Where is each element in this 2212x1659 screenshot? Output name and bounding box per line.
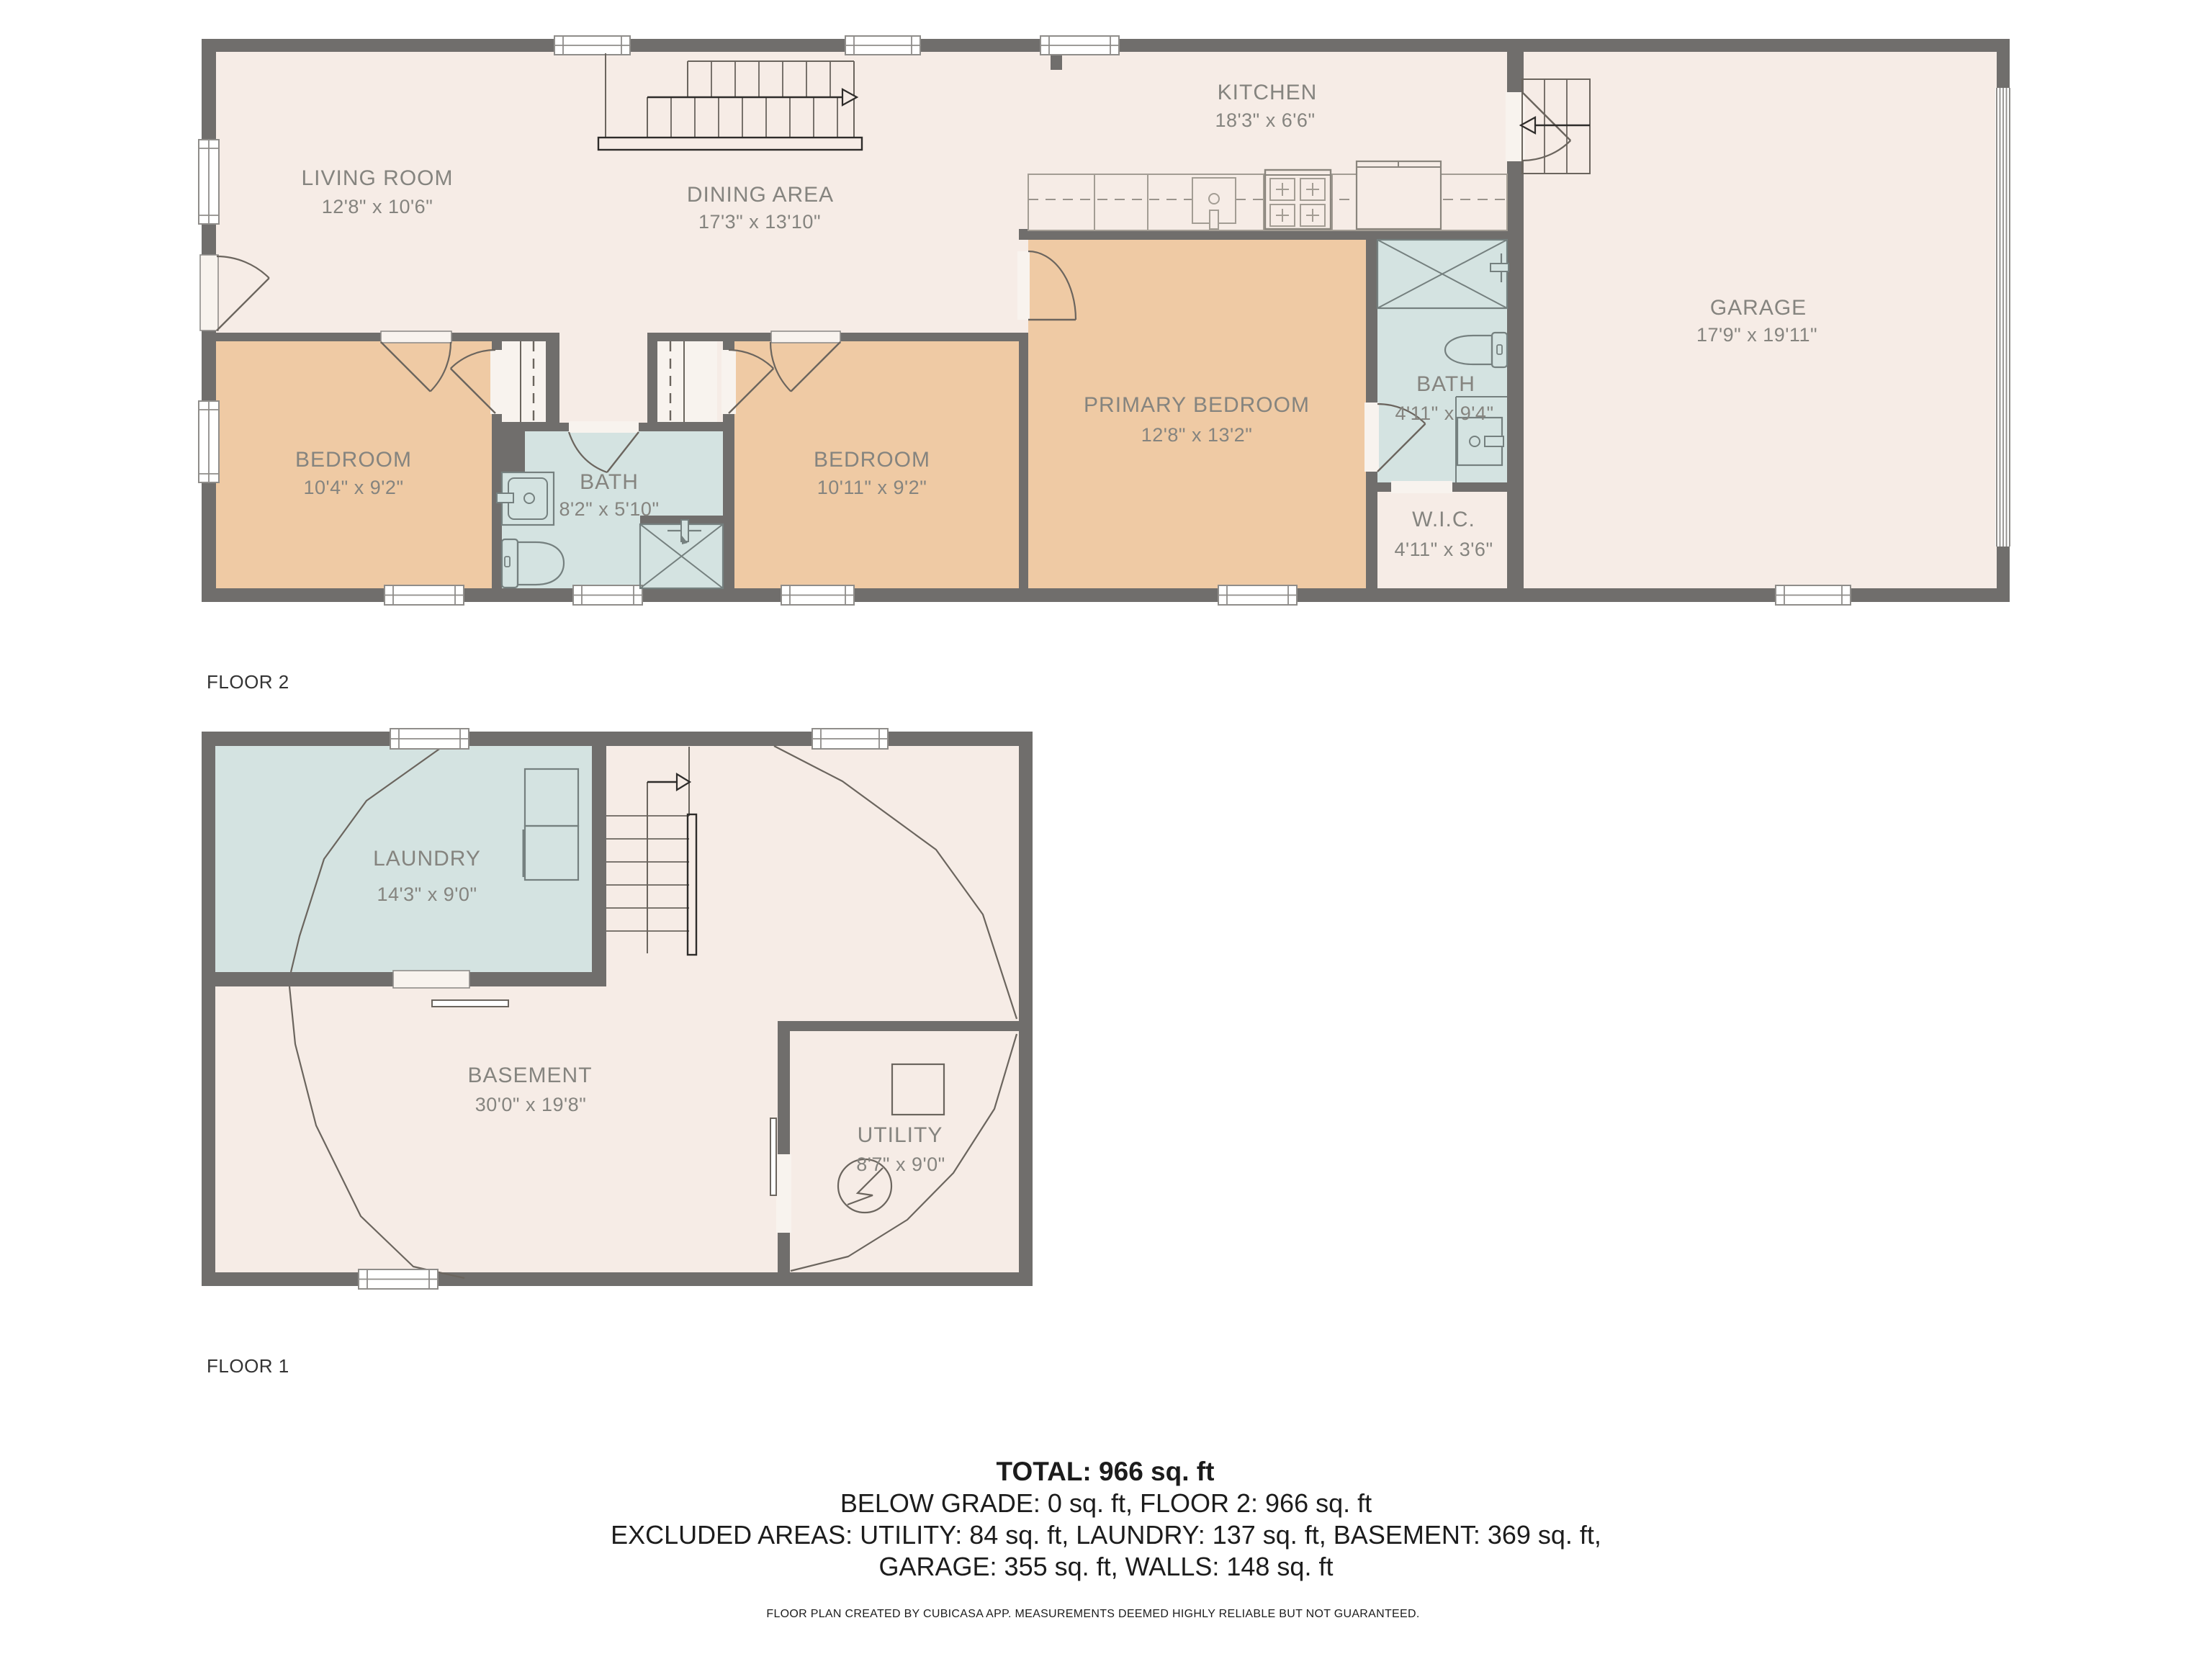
svg-text:10'4" x 9'2": 10'4" x 9'2" [303, 477, 403, 498]
svg-text:EXCLUDED AREAS: UTILITY: 84 sq: EXCLUDED AREAS: UTILITY: 84 sq. ft, LAUN… [611, 1520, 1601, 1550]
svg-text:BATH: BATH [580, 470, 639, 494]
svg-text:GARAGE: 355 sq. ft, WALLS: 148: GARAGE: 355 sq. ft, WALLS: 148 sq. ft [879, 1552, 1334, 1581]
svg-text:BASEMENT: BASEMENT [467, 1064, 592, 1087]
svg-text:8'2" x 5'10": 8'2" x 5'10" [559, 498, 659, 520]
svg-text:10'11" x 9'2": 10'11" x 9'2" [817, 477, 927, 498]
svg-text:12'8" x 13'2": 12'8" x 13'2" [1141, 424, 1253, 446]
svg-text:TOTAL: 966 sq. ft: TOTAL: 966 sq. ft [997, 1457, 1215, 1486]
svg-text:FLOOR PLAN CREATED BY CUBICASA: FLOOR PLAN CREATED BY CUBICASA APP. MEAS… [766, 1608, 1419, 1620]
svg-text:LIVING ROOM: LIVING ROOM [301, 166, 453, 190]
svg-text:17'9" x 19'11": 17'9" x 19'11" [1696, 324, 1817, 346]
svg-text:BATH: BATH [1416, 372, 1475, 396]
svg-text:12'8" x 10'6": 12'8" x 10'6" [322, 196, 433, 217]
svg-text:FLOOR 1: FLOOR 1 [207, 1355, 289, 1377]
svg-text:4'11" x 9'4": 4'11" x 9'4" [1395, 403, 1493, 424]
svg-text:14'3" x 9'0": 14'3" x 9'0" [377, 884, 477, 905]
svg-text:KITCHEN: KITCHEN [1218, 81, 1318, 104]
svg-text:FLOOR 2: FLOOR 2 [207, 671, 289, 693]
svg-text:GARAGE: GARAGE [1710, 296, 1807, 320]
svg-text:30'0" x 19'8": 30'0" x 19'8" [475, 1094, 587, 1115]
svg-text:UTILITY: UTILITY [858, 1123, 943, 1147]
svg-text:BELOW GRADE: 0 sq. ft, FLOOR 2: BELOW GRADE: 0 sq. ft, FLOOR 2: 966 sq. … [840, 1488, 1372, 1518]
svg-text:4'11" x 3'6": 4'11" x 3'6" [1394, 539, 1493, 560]
svg-text:W.I.C.: W.I.C. [1412, 508, 1475, 531]
svg-text:PRIMARY BEDROOM: PRIMARY BEDROOM [1084, 393, 1310, 417]
svg-text:LAUNDRY: LAUNDRY [373, 847, 481, 871]
svg-text:18'3" x 6'6": 18'3" x 6'6" [1215, 109, 1315, 131]
svg-text:DINING AREA: DINING AREA [687, 183, 834, 207]
svg-text:17'3" x 13'10": 17'3" x 13'10" [698, 211, 821, 233]
svg-text:BEDROOM: BEDROOM [814, 448, 930, 472]
svg-text:BEDROOM: BEDROOM [295, 448, 412, 472]
svg-text:8'7" x 9'0": 8'7" x 9'0" [856, 1154, 945, 1175]
